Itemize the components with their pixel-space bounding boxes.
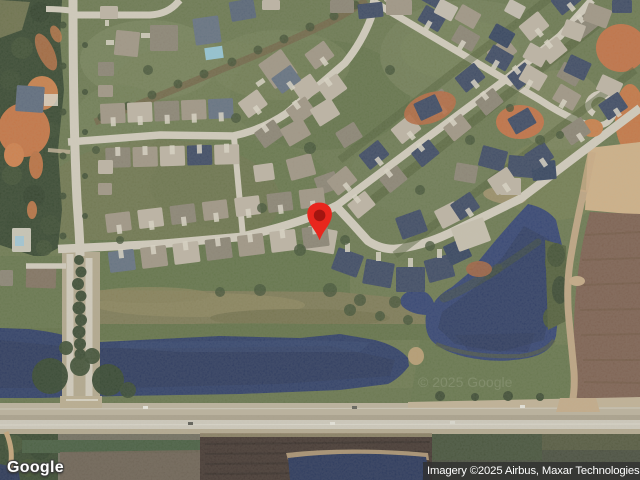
svg-text:© 2025 Google: © 2025 Google bbox=[418, 374, 513, 390]
